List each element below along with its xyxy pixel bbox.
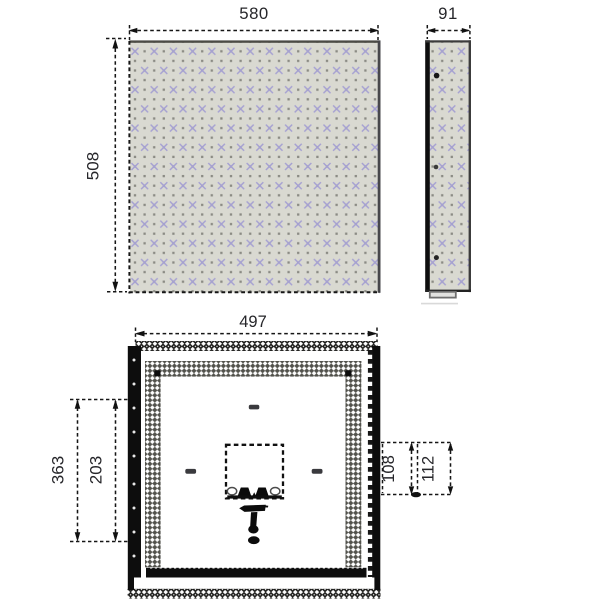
svg-text:580: 580 bbox=[239, 4, 269, 23]
svg-text:203: 203 bbox=[87, 456, 106, 484]
svg-text:112: 112 bbox=[420, 456, 438, 482]
svg-text:508: 508 bbox=[84, 152, 103, 180]
svg-text:497: 497 bbox=[239, 313, 267, 331]
svg-text:91: 91 bbox=[438, 4, 458, 23]
svg-text:363: 363 bbox=[49, 456, 68, 484]
